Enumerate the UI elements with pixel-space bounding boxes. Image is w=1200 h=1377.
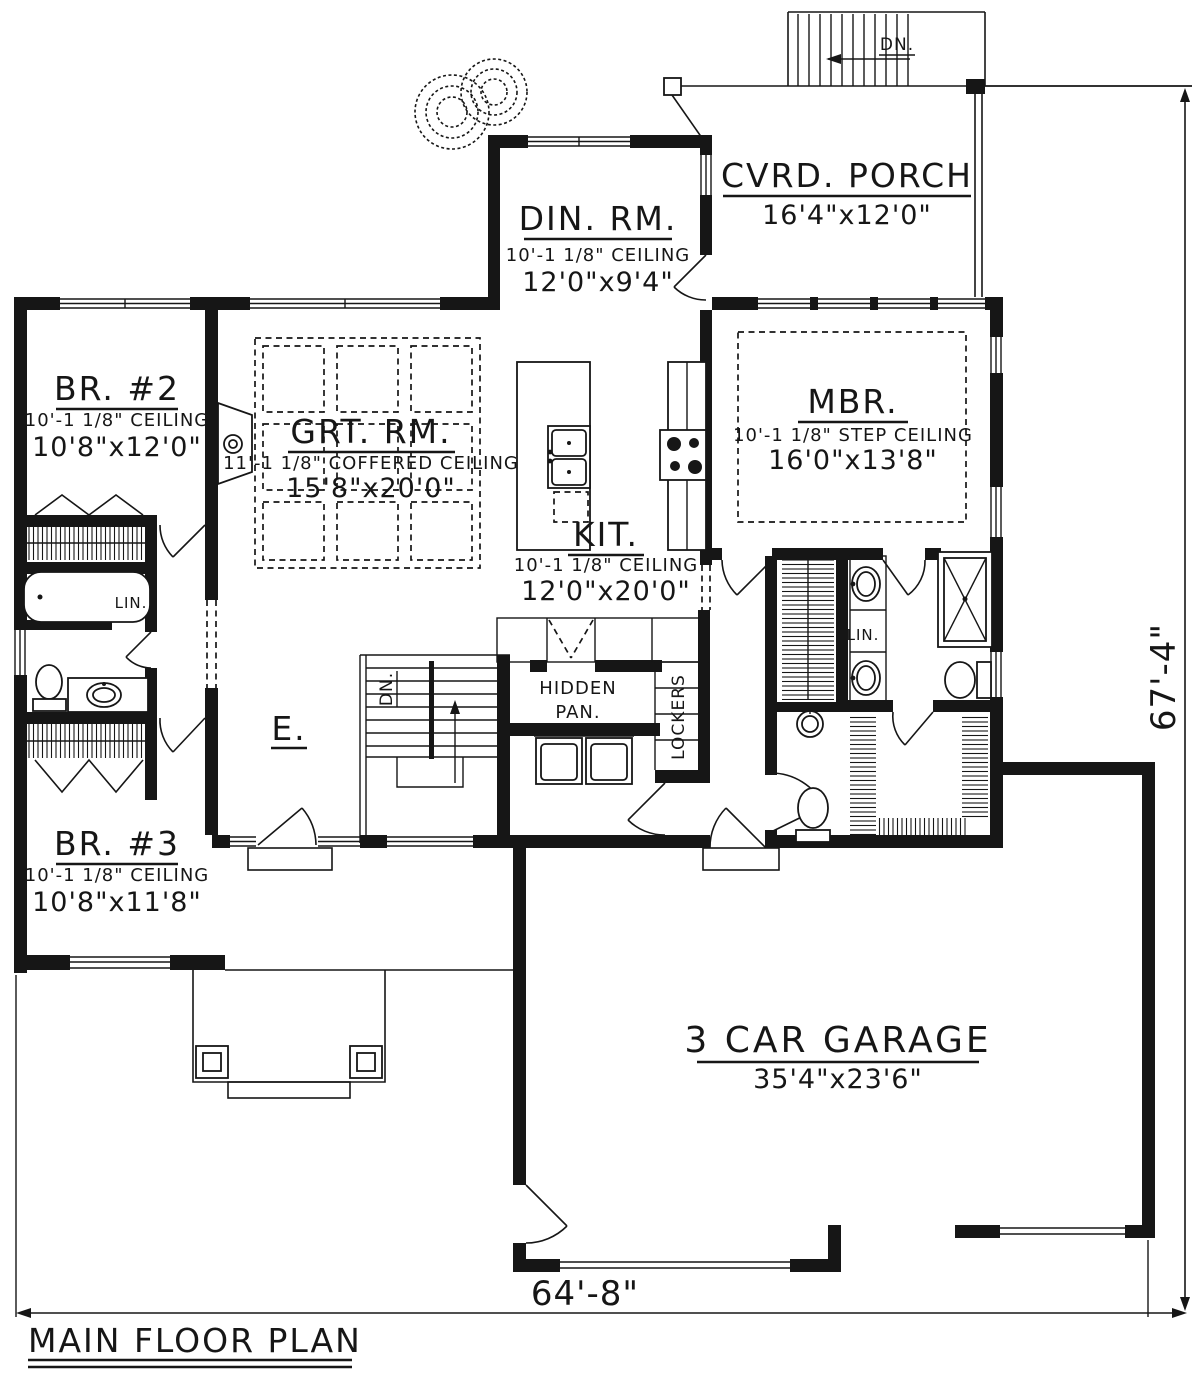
room-ceiling-br2: 10'-1 1/8" CEILING [25,410,210,431]
toilet-icon [945,662,991,698]
bifold-doors [35,495,143,515]
label-layer: CVRD. PORCH 16'4"x12'0" DIN. RM. 10'-1 1… [25,35,1184,1367]
room-ceiling-dining: 10'-1 1/8" CEILING [506,245,691,266]
mbr-door [722,560,772,595]
bath-door [126,632,151,668]
room-size-br3: 10'8"x11'8" [32,887,202,918]
bifold-doors [35,760,143,792]
room-size-br2: 10'8"x12'0" [32,432,202,463]
front-door [258,808,316,845]
washer-icon [536,738,582,784]
window [991,337,1001,373]
tree-icon [461,59,527,125]
label-stairs-dn: DN. [377,671,397,707]
label-deck-dn: DN. [880,35,914,55]
kitchen-counter [660,362,706,550]
room-label-br2: BR. #2 [54,369,180,408]
room-label-entry: E. [271,709,306,748]
window [528,137,630,146]
floor-plan-drawing: CVRD. PORCH 16'4"x12'0" DIN. RM. 10'-1 1… [0,0,1200,1377]
garage-service-door [526,1185,567,1243]
room-label-lockers: LOCKERS [669,674,689,760]
room-label-porch: CVRD. PORCH [721,156,973,195]
window [701,155,711,195]
toilet-icon [33,665,66,711]
window [60,299,190,308]
window [230,837,256,846]
room-label-mbr: MBR. [807,382,898,421]
tree-icon [415,75,489,149]
room-label-pantry-1: HIDDEN [539,678,616,699]
shower-icon [938,552,992,647]
room-label-garage: 3 CAR GARAGE [684,1020,991,1061]
window [991,487,1001,537]
room-size-dining: 12'0"x9'4" [522,267,674,298]
room-label-kitchen: KIT. [573,515,639,554]
room-label-br3: BR. #3 [54,824,180,863]
closet-rod [850,715,876,840]
label-linen-hall: LIN. [115,594,148,612]
window [15,630,25,675]
window [991,652,1001,697]
toilet-icon [796,788,830,842]
room-label-pantry-2: PAN. [555,702,600,723]
room-size-great: 15'8"x20'0" [286,473,456,504]
mudroom-door [710,808,766,848]
sink-icon [68,678,148,712]
room-ceiling-br3: 10'-1 1/8" CEILING [25,865,210,886]
window [250,299,440,308]
cased-opening [702,565,710,610]
closet-rod [876,818,966,842]
room-size-mbr: 16'0"x13'8" [768,445,938,476]
window [70,957,170,968]
room-size-garage: 35'4"x23'6" [753,1064,923,1095]
dimension-height: 67'-4" [1144,623,1184,731]
br2-door [160,525,205,557]
master-bath-door [883,560,925,595]
window [387,837,473,846]
room-size-kitchen: 12'0"x20'0" [521,576,691,607]
cased-opening [207,600,216,688]
walkin-closet-door [893,712,933,745]
pantry-counter [497,618,708,662]
br3-door [160,718,205,752]
window [318,837,360,846]
room-ceiling-great: 11'-1 1/8" COFFERED CEILING [223,453,519,474]
closet-rod [962,715,988,818]
room-ceiling-mbr: 10'-1 1/8" STEP CEILING [733,425,973,446]
dimension-width: 64'-8" [531,1274,639,1314]
hall-door [628,783,665,835]
room-label-dining: DIN. RM. [519,199,678,238]
sink-icon [797,708,823,737]
room-label-great: GRT. RM. [290,412,451,451]
garage-doors [560,1228,1125,1268]
dryer-icon [586,738,632,784]
floor-plan-canvas: CVRD. PORCH 16'4"x12'0" DIN. RM. 10'-1 1… [0,0,1200,1377]
page-title: MAIN FLOOR PLAN [28,1321,362,1360]
room-ceiling-kitchen: 10'-1 1/8" CEILING [514,555,699,576]
label-linen-master: LIN. [847,626,880,644]
room-size-porch: 16'4"x12'0" [762,200,932,231]
svg-text:DN.: DN. [377,672,397,706]
